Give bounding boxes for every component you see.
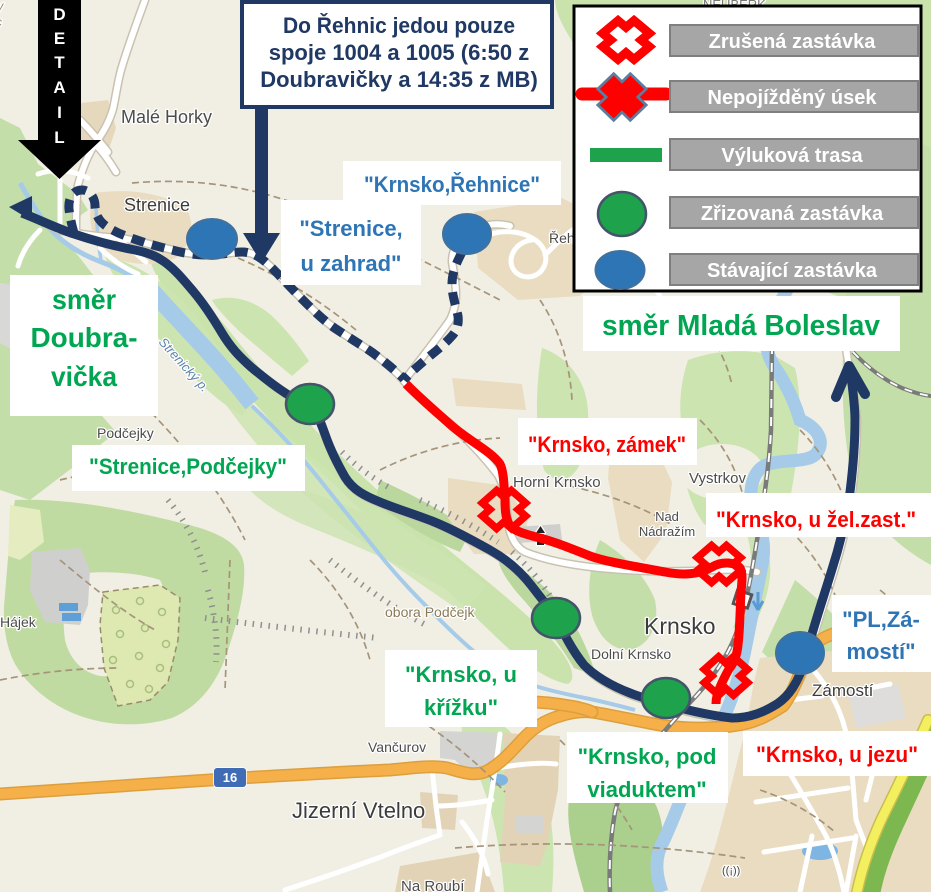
svg-text:Krnsko: Krnsko (644, 613, 716, 639)
svg-text:D: D (53, 5, 65, 24)
svg-text:Nepojížděný úsek: Nepojížděný úsek (708, 87, 878, 109)
svg-text:Do Řehnic jedou pouze: Do Řehnic jedou pouze (283, 13, 515, 38)
svg-text:obora Podčejk: obora Podčejk (385, 604, 476, 620)
svg-text:I: I (57, 103, 62, 122)
svg-text:Stávající zastávka: Stávající zastávka (707, 260, 878, 282)
svg-text:Výluková trasa: Výluková trasa (721, 145, 863, 167)
svg-text:mostí": mostí" (846, 639, 915, 664)
svg-text:"Strenice,Podčejky": "Strenice,Podčejky" (89, 454, 287, 479)
svg-text:směr: směr (52, 284, 116, 315)
svg-text:E: E (54, 29, 65, 48)
svg-text:u zahrad": u zahrad" (301, 251, 402, 276)
svg-text:L: L (54, 128, 64, 147)
svg-text:Malé Horky: Malé Horky (121, 107, 212, 127)
svg-text:Nad: Nad (655, 509, 679, 524)
svg-text:Jizerní Vtelno: Jizerní Vtelno (292, 798, 425, 823)
svg-text:Zřizovaná zastávka: Zřizovaná zastávka (701, 203, 884, 225)
svg-text:c: c (0, 15, 2, 29)
svg-text:T: T (54, 53, 65, 72)
svg-text:Na Roubí: Na Roubí (401, 878, 465, 892)
svg-text:"Krnsko, u jezu": "Krnsko, u jezu" (756, 742, 918, 767)
svg-text:křížku": křížku" (424, 695, 498, 720)
svg-text:Horní Krnsko: Horní Krnsko (513, 474, 601, 491)
svg-text:směr Mladá Boleslav: směr Mladá Boleslav (602, 310, 880, 342)
svg-text:16: 16 (223, 770, 237, 785)
svg-text:Vančurov: Vančurov (368, 739, 426, 755)
svg-text:Zrušená zastávka: Zrušená zastávka (709, 31, 877, 53)
svg-text:"Krnsko,Řehnice": "Krnsko,Řehnice" (364, 172, 540, 197)
svg-text:Dolní Krnsko: Dolní Krnsko (591, 646, 671, 662)
svg-text:viaduktem": viaduktem" (587, 777, 706, 802)
svg-text:Doubra-: Doubra- (31, 322, 138, 353)
svg-text:spoje 1004 a 1005 (6:50 z: spoje 1004 a 1005 (6:50 z (269, 40, 530, 65)
svg-text:((¡)): ((¡)) (722, 865, 740, 877)
svg-text:"Krnsko, u: "Krnsko, u (405, 662, 517, 687)
svg-text:"Krnsko, zámek": "Krnsko, zámek" (528, 432, 686, 457)
svg-text:Doubravičky a 14:35 z MB): Doubravičky a 14:35 z MB) (260, 67, 538, 92)
svg-text:A: A (53, 78, 65, 97)
svg-text:Strenice: Strenice (124, 195, 190, 215)
svg-text:Podčejky: Podčejky (97, 425, 154, 441)
svg-text:"Krnsko, u žel.zast.": "Krnsko, u žel.zast." (716, 507, 916, 532)
svg-text:"Strenice,: "Strenice, (299, 216, 402, 241)
svg-text:Vystrkov: Vystrkov (689, 470, 746, 487)
svg-text:Hájek: Hájek (0, 614, 37, 630)
svg-text:"PL,Zá-: "PL,Zá- (842, 607, 920, 632)
svg-text:"Krnsko, pod: "Krnsko, pod (578, 744, 717, 769)
svg-text:Zámostí: Zámostí (812, 681, 874, 700)
svg-text:Nádražím: Nádražím (639, 524, 695, 539)
svg-text:vička: vička (51, 361, 117, 392)
